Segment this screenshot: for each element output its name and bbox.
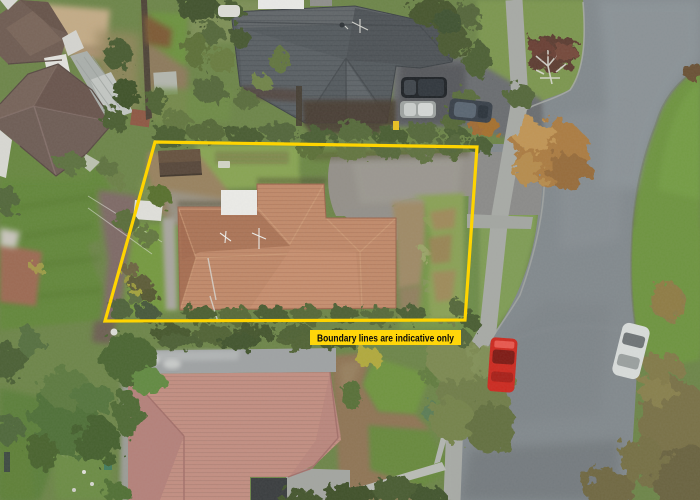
svg-text:Boundary lines are indicative: Boundary lines are indicative only: [317, 333, 454, 344]
